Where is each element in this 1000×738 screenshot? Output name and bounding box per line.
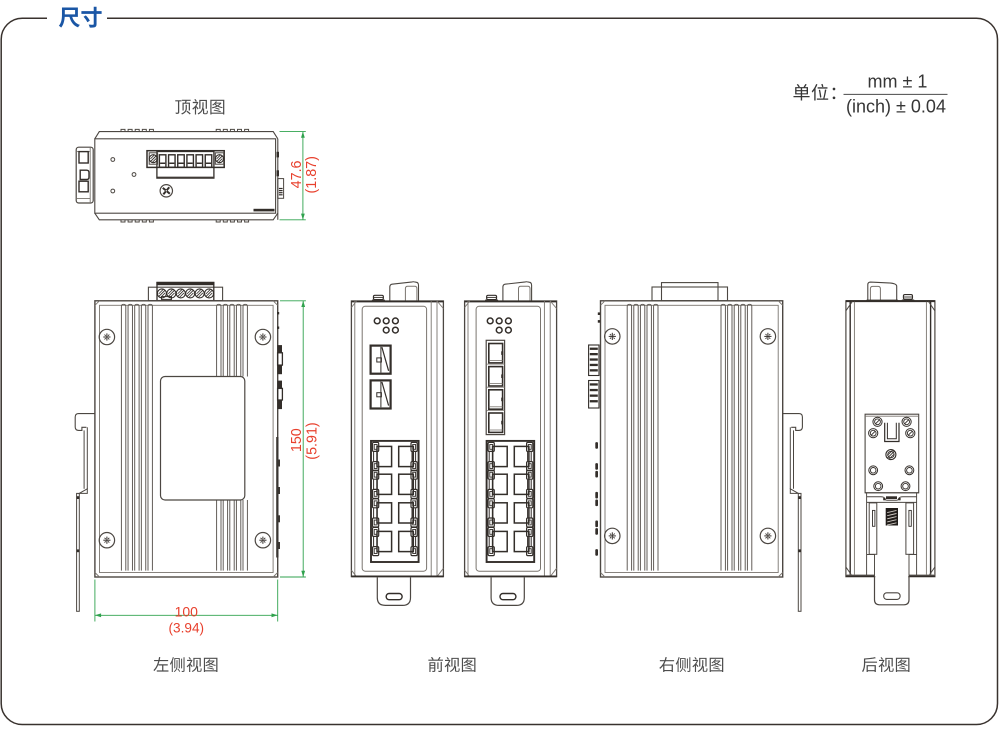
svg-text:(1.87): (1.87) [304, 156, 320, 193]
svg-text:(inch) ± 0.04: (inch) ± 0.04 [846, 96, 946, 116]
svg-text:150: 150 [289, 428, 305, 452]
svg-text:mm ± 1: mm ± 1 [868, 72, 928, 92]
svg-text:(3.94): (3.94) [169, 621, 205, 636]
svg-text:100: 100 [175, 604, 199, 620]
svg-text:(5.91): (5.91) [305, 422, 321, 459]
svg-text:47.6: 47.6 [289, 160, 305, 188]
